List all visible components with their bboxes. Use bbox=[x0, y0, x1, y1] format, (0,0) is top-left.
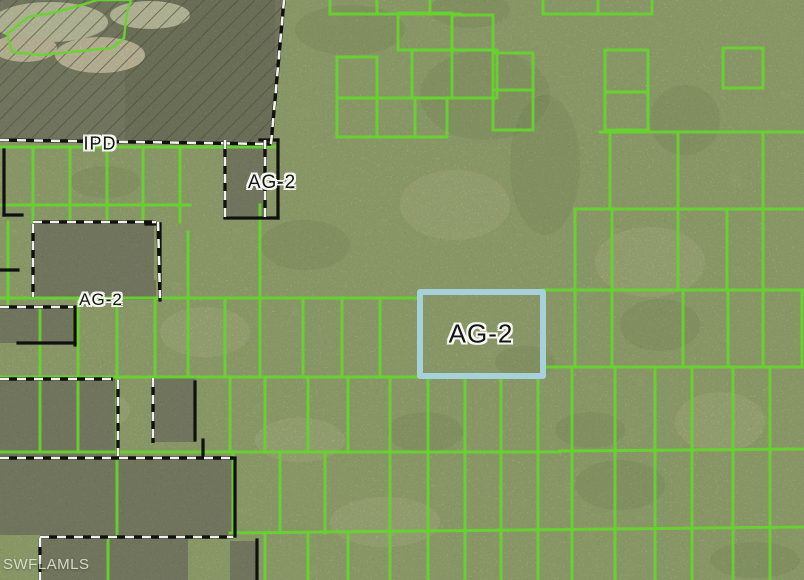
zone-label-ag2-selected: AG-2 bbox=[449, 319, 514, 350]
zone-label-ag2-north: AG-2 bbox=[248, 172, 296, 194]
zone-label-ipd: IPD bbox=[83, 134, 116, 155]
mls-watermark: SWFLAMLS bbox=[3, 556, 90, 573]
zone-label-ag2-west: AG-2 bbox=[79, 290, 123, 310]
parcel-zoning-map[interactable]: IPD AG-2 AG-2 AG-2 SWFLAMLS bbox=[0, 0, 804, 580]
